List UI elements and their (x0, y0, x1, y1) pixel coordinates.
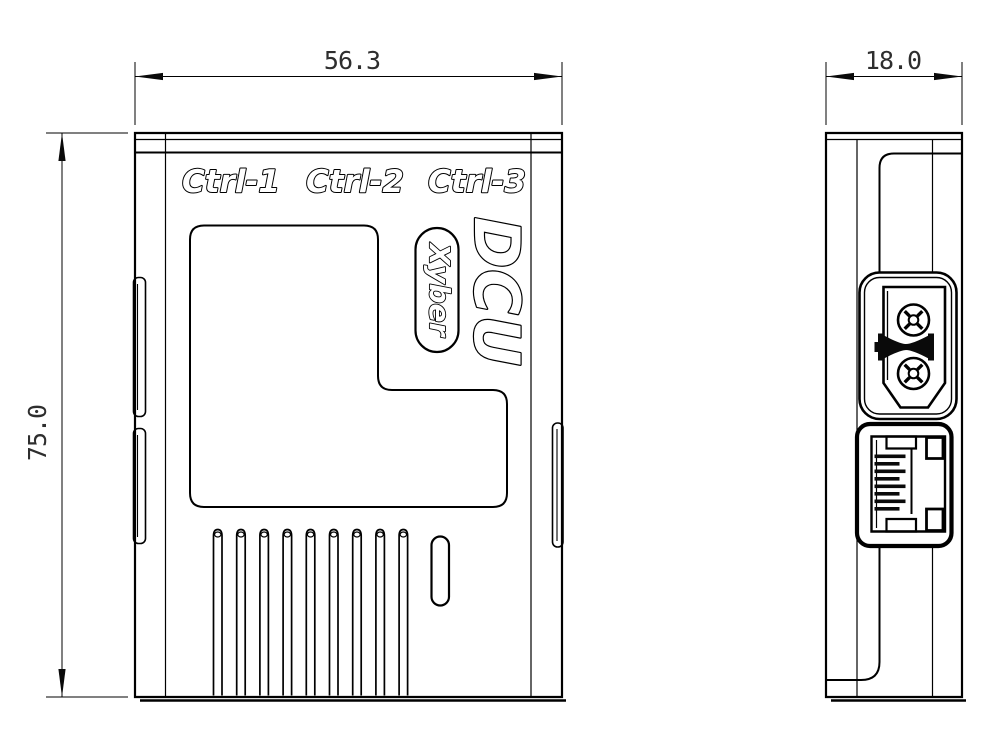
xt30-power-connector (860, 273, 957, 420)
polarity-key (875, 334, 935, 361)
vent-slot (376, 530, 385, 696)
product-logo: DCU (460, 217, 533, 367)
pin-socket-top (898, 305, 929, 336)
vent-slot (237, 530, 246, 696)
port-label-ctrl3: Ctrl-3 (428, 164, 526, 200)
vent-slot-cap (261, 532, 267, 537)
pin-socket-bottom (898, 358, 929, 389)
vent-slot (260, 530, 269, 696)
technical-drawing: Ctrl-1 Ctrl-2 Ctrl-3 DCU Xyber (0, 0, 1000, 737)
front-view: Ctrl-1 Ctrl-2 Ctrl-3 DCU Xyber (134, 133, 567, 701)
dimension-depth: 18.0 (826, 46, 962, 125)
width-dim-text: 56.3 (324, 46, 380, 75)
vent-slot (353, 530, 362, 696)
vent-slot-cap (400, 532, 406, 537)
port-labels: Ctrl-1 Ctrl-2 Ctrl-3 (182, 164, 526, 200)
port-label-ctrl1: Ctrl-1 (182, 164, 280, 200)
oblong-slot (432, 537, 450, 606)
vent-slot (330, 530, 339, 696)
vent-slot (214, 530, 223, 696)
rj45-ethernet-port (857, 424, 952, 546)
vent-slot (283, 530, 292, 696)
rj45-pins (875, 455, 906, 511)
vent-slot-cap (215, 532, 221, 537)
vent-slot-cap (377, 532, 383, 537)
vent-slot-cap (354, 532, 360, 537)
port-label-ctrl2: Ctrl-2 (306, 164, 404, 200)
side-view (826, 133, 966, 701)
dimension-height: 75.0 (23, 133, 128, 697)
vent-slots (214, 530, 408, 696)
vent-slot-cap (331, 532, 337, 537)
brand-logo: Xyber (423, 242, 456, 339)
vent-slot (306, 530, 315, 696)
dimension-width: 56.3 (135, 46, 562, 125)
vent-slot-cap (307, 532, 313, 537)
brand-badge: Xyber (416, 228, 459, 352)
depth-dim-text: 18.0 (865, 46, 921, 75)
vent-slot-cap (238, 532, 244, 537)
vent-slot (399, 530, 408, 696)
height-dim-text: 75.0 (23, 405, 52, 461)
vent-slot-cap (284, 532, 290, 537)
